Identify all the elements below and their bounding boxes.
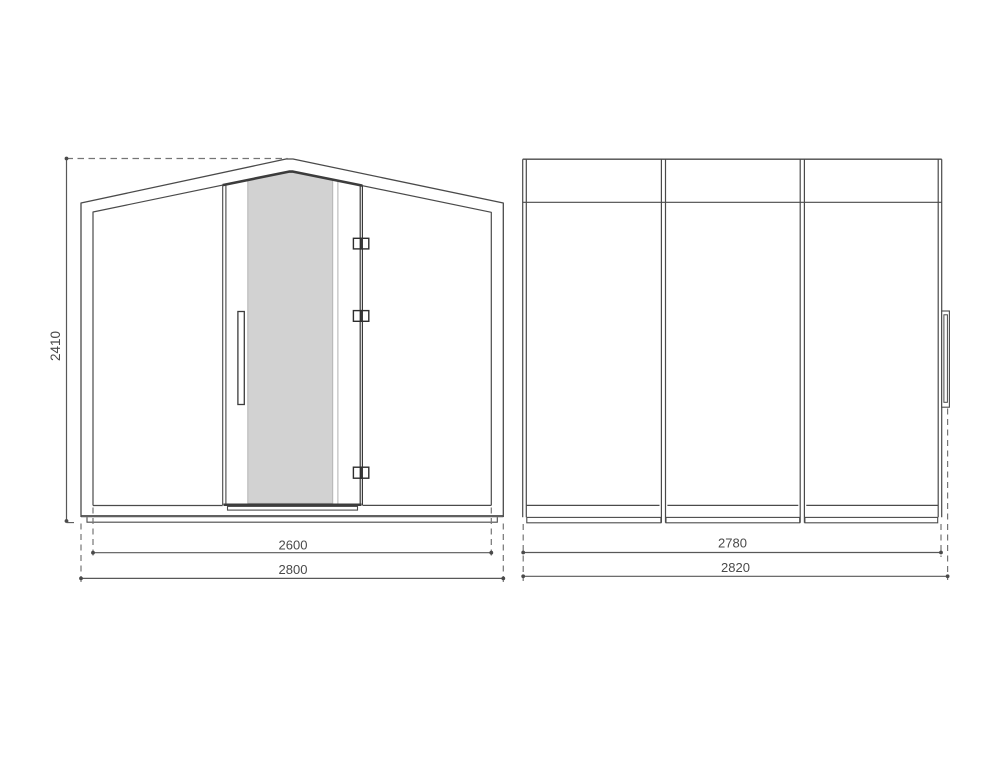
svg-text:2800: 2800	[279, 562, 308, 577]
svg-text:2780: 2780	[718, 535, 747, 550]
svg-text:2410: 2410	[48, 331, 63, 361]
svg-text:2820: 2820	[721, 560, 750, 575]
svg-text:2600: 2600	[279, 537, 308, 552]
